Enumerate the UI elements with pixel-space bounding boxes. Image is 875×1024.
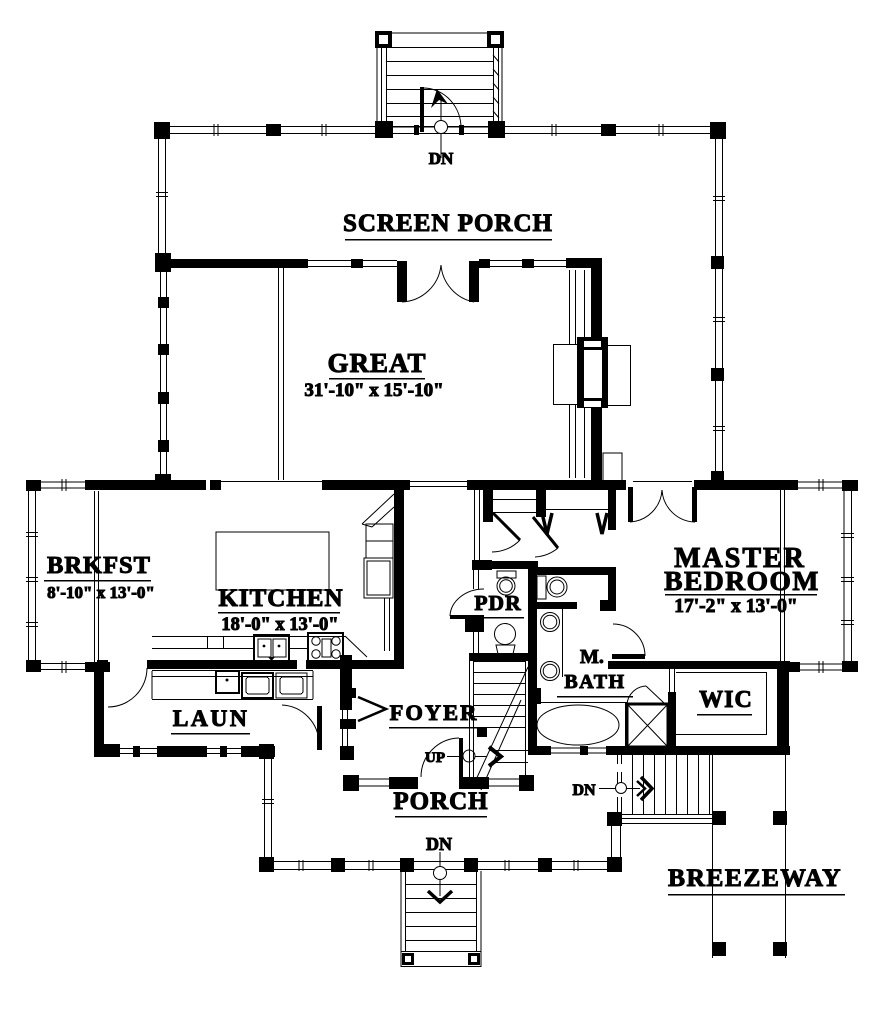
svg-text:FOYER: FOYER <box>390 700 479 725</box>
svg-text:18'-0" x 13'-0": 18'-0" x 13'-0" <box>221 615 338 635</box>
svg-text:M.: M. <box>580 646 604 668</box>
svg-text:BATH: BATH <box>564 671 625 693</box>
svg-text:PORCH: PORCH <box>393 788 488 815</box>
svg-text:LAUN: LAUN <box>173 706 250 732</box>
svg-text:BREEZEWAY: BREEZEWAY <box>668 863 842 892</box>
svg-text:KITCHEN: KITCHEN <box>218 585 343 612</box>
svg-text:DN: DN <box>429 149 454 168</box>
svg-text:GREAT: GREAT <box>327 348 426 378</box>
svg-text:DN: DN <box>426 834 452 854</box>
svg-text:PDR: PDR <box>474 591 521 615</box>
svg-text:UP: UP <box>425 750 445 766</box>
svg-text:17'-2" x 13'-0": 17'-2" x 13'-0" <box>674 596 797 617</box>
svg-text:8'-10" x 13'-0": 8'-10" x 13'-0" <box>47 583 155 602</box>
svg-text:SCREEN PORCH: SCREEN PORCH <box>343 210 553 237</box>
svg-text:DN: DN <box>572 782 596 799</box>
svg-text:WIC: WIC <box>699 687 753 713</box>
svg-text:31'-10" x 15'-10": 31'-10" x 15'-10" <box>304 380 443 401</box>
svg-text:BEDROOM: BEDROOM <box>664 565 820 596</box>
svg-text:BRKFST: BRKFST <box>47 552 151 579</box>
